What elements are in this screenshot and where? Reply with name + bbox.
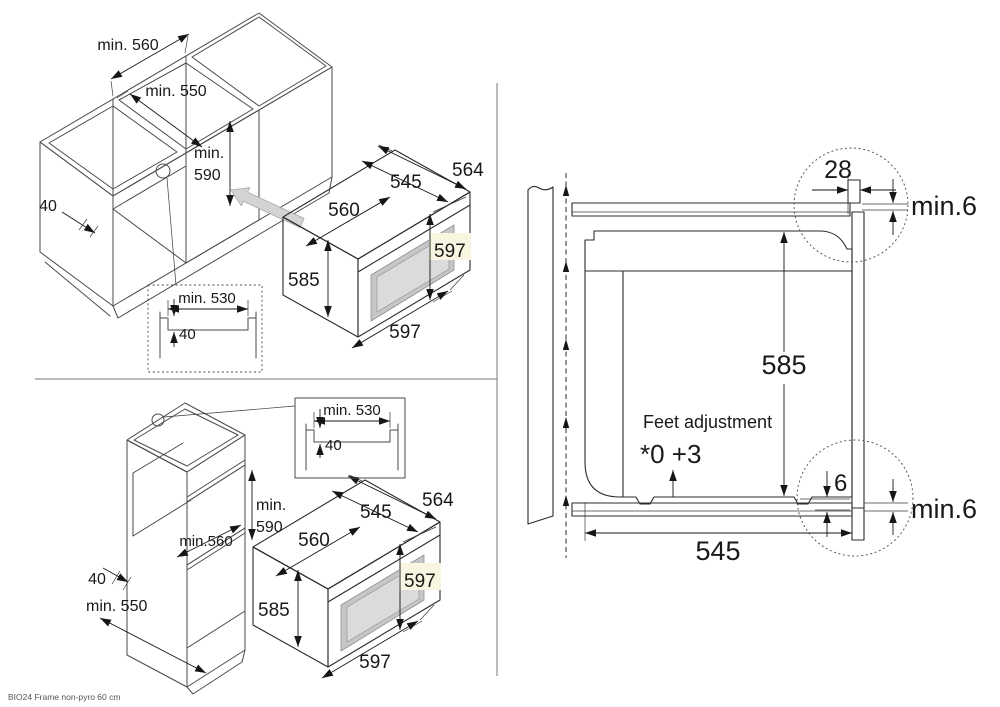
dim-label-inset-width: min. 530: [323, 402, 381, 419]
sheet-caption: BIO24 Frame non-pyro 60 cm: [8, 692, 120, 702]
dim-label-opening-width: min.560: [179, 533, 232, 550]
feet-note-line2: *0 +3: [640, 439, 701, 469]
installation-drawing: 564 545 560 585 597: [0, 0, 1000, 707]
feet-note-line1: Feet adjustment: [643, 412, 772, 432]
dim-label-opening-height-2: 590: [256, 519, 283, 536]
dim-label-top-clearance: min.6: [911, 191, 977, 221]
dim-label-inset-depth: 40: [179, 326, 196, 343]
dim-label-plinth: 40: [39, 198, 57, 215]
dim-label-inset-width: min. 530: [178, 290, 236, 307]
dim-label-inset-depth: 40: [325, 437, 342, 454]
dim-label-frame-overlap: 28: [824, 156, 852, 184]
dim-label-foot-height: 6: [834, 470, 847, 497]
oven-installation-sheet: 564 545 560 585 597: [0, 0, 1000, 707]
dim-label-bottom-clearance: min.6: [911, 494, 977, 524]
dim-label-opening-height-1: min.: [256, 497, 286, 514]
dim-label-opening-depth: min. 550: [145, 83, 206, 100]
dim-label-opening-height-1: min.: [194, 145, 224, 162]
dim-label-body-height: 585: [761, 350, 806, 380]
dim-label-opening-height-2: 590: [194, 167, 221, 184]
dim-label-opening-depth: min. 550: [86, 598, 147, 615]
dim-label-body-depth: 545: [695, 536, 740, 566]
dim-label-gap: 40: [88, 571, 106, 588]
dim-label-opening-width: min. 560: [97, 37, 158, 54]
page-background: [0, 0, 1000, 707]
